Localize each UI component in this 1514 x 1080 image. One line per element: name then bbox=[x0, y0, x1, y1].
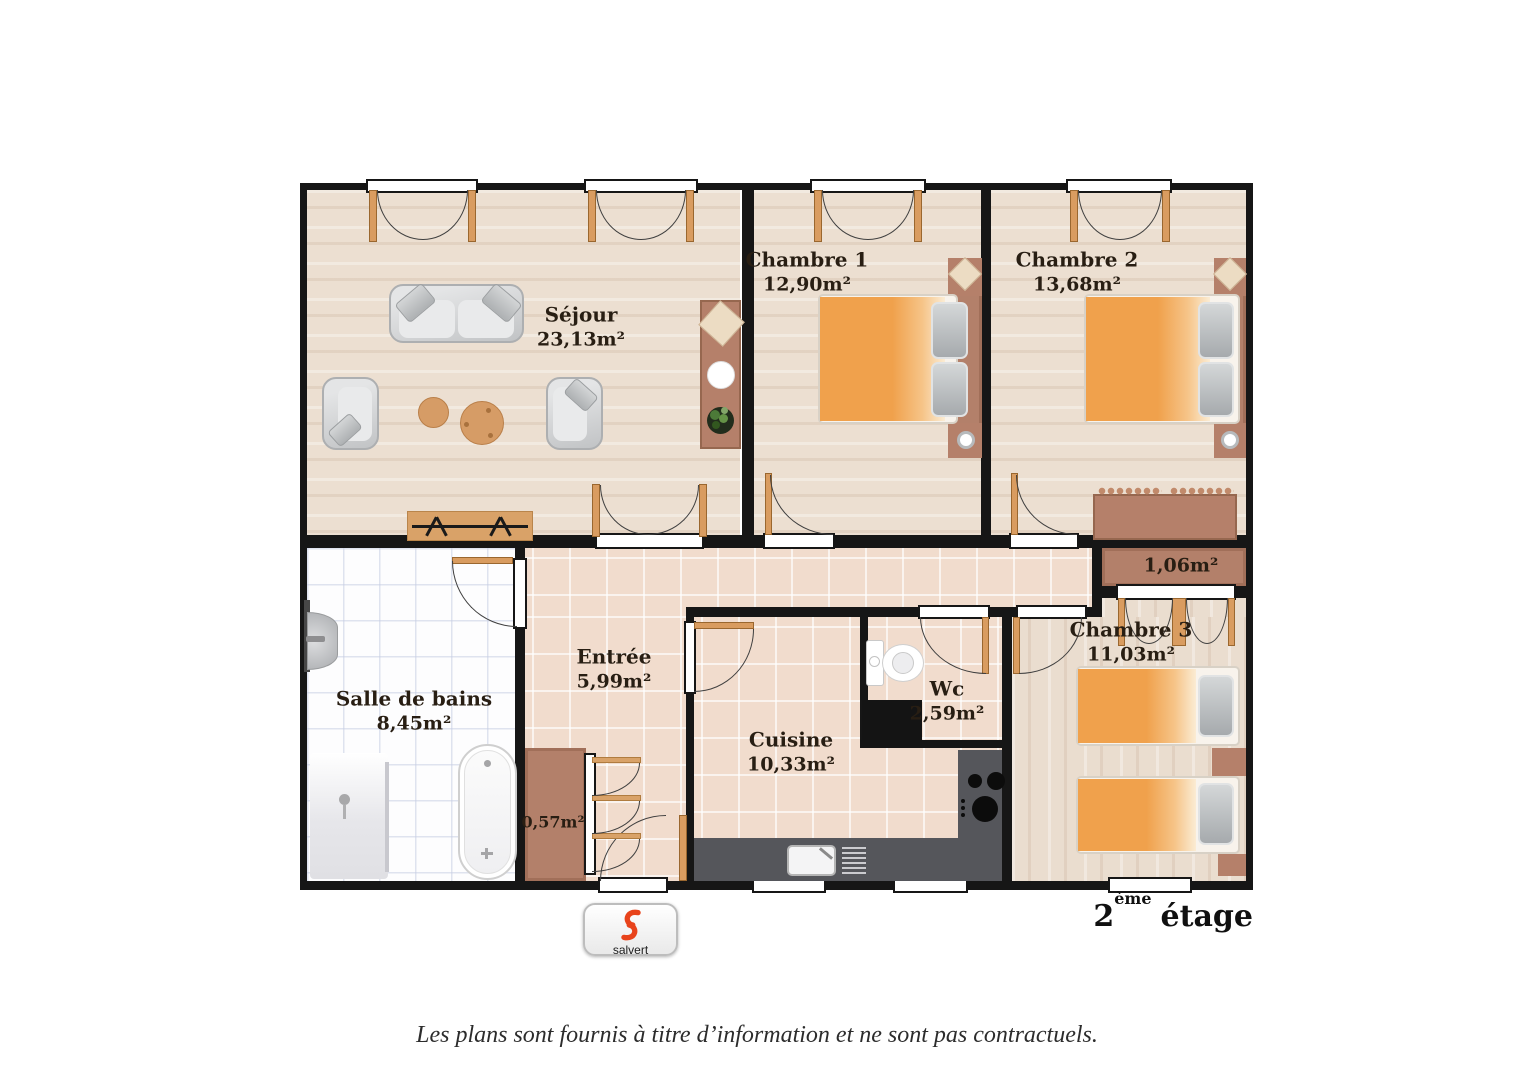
wall-chambre1-chambre2 bbox=[981, 190, 991, 535]
room-name: Wc bbox=[910, 675, 985, 701]
room-label-chambre1: Chambre 1 12,90m² bbox=[746, 246, 869, 297]
table-detail bbox=[486, 408, 491, 413]
wall-outer-right bbox=[1246, 183, 1253, 890]
chambre3-mattress1 bbox=[1078, 669, 1196, 743]
decor-plate bbox=[707, 361, 735, 389]
room-label-chambre3: Chambre 3 11,03m² bbox=[1070, 616, 1193, 667]
closet-057-label: 0,57m² bbox=[522, 811, 585, 832]
shower bbox=[310, 753, 388, 879]
floor-hall bbox=[525, 548, 1092, 607]
chambre2-pillow bbox=[1198, 362, 1234, 417]
closet-106-label: 1,06m² bbox=[1144, 553, 1219, 578]
window-jamb bbox=[369, 190, 377, 242]
chambre3-pillow2 bbox=[1198, 783, 1234, 845]
room-name: Entrée bbox=[576, 643, 651, 669]
coffee-table-small bbox=[418, 397, 449, 428]
floor-title: 2èmeétage bbox=[1000, 899, 1253, 934]
room-area: 5,99m² bbox=[576, 670, 651, 695]
room-label-sejour: Séjour 23,13m² bbox=[537, 301, 625, 352]
shower-hose bbox=[343, 805, 346, 819]
wall-hall-closet106 bbox=[1092, 540, 1102, 607]
sink-faucet bbox=[306, 636, 325, 642]
room-name: Chambre 3 bbox=[1070, 616, 1193, 642]
room-name: Séjour bbox=[537, 301, 625, 327]
room-area: 13,68m² bbox=[1016, 273, 1139, 298]
chambre1-pillow bbox=[931, 302, 968, 359]
door-cuisine-leaf bbox=[694, 622, 754, 629]
room-area: 8,45m² bbox=[336, 712, 492, 737]
room-area: 10,33m² bbox=[747, 753, 835, 778]
bifold-jamb bbox=[1228, 598, 1235, 646]
room-name: Salle de bains bbox=[336, 685, 492, 711]
door-sejour-leaf bbox=[699, 484, 707, 537]
dresser-scallop bbox=[1098, 487, 1162, 495]
chambre1-mattress bbox=[820, 297, 945, 421]
chambre3-side-table bbox=[1218, 854, 1246, 876]
room-label-entree: Entrée 5,99m² bbox=[576, 643, 651, 694]
wall-outer-left bbox=[300, 183, 307, 890]
room-label-cuisine: Cuisine 10,33m² bbox=[747, 726, 835, 777]
table-detail bbox=[488, 433, 493, 438]
cooktop-knob bbox=[961, 813, 965, 817]
bathtub-drain bbox=[484, 760, 491, 767]
salvert-logo: salvert bbox=[583, 903, 678, 956]
table-detail bbox=[464, 422, 469, 427]
kitchen-counter-right bbox=[958, 750, 1002, 838]
floor-plan-page: Séjour 23,13m² Chambre 1 12,90m² Chambre… bbox=[0, 0, 1514, 1080]
chambre2-lamp bbox=[1221, 431, 1239, 449]
dresser-scallop bbox=[1170, 487, 1234, 495]
logo-brand-text: salvert bbox=[585, 944, 676, 956]
window-jamb bbox=[914, 190, 922, 242]
room-name: Cuisine bbox=[747, 726, 835, 752]
wall-wc-bottom bbox=[860, 740, 1002, 748]
room-area: 23,13m² bbox=[537, 328, 625, 353]
chambre3-nightstand bbox=[1212, 748, 1246, 776]
cooktop-burner bbox=[987, 772, 1005, 790]
window-jamb bbox=[1070, 190, 1078, 242]
disclaimer-text: Les plans sont fournis à titre d’informa… bbox=[0, 1022, 1514, 1049]
logo-s-icon bbox=[616, 908, 646, 942]
cooktop-knob bbox=[961, 799, 965, 803]
room-area: 12,90m² bbox=[746, 273, 869, 298]
door-chambre2-threshold bbox=[1009, 533, 1079, 549]
room-name: Chambre 1 bbox=[746, 246, 869, 272]
floor-word: étage bbox=[1161, 899, 1253, 934]
cooktop-burner bbox=[968, 774, 982, 788]
room-label-wc: Wc 2,59m² bbox=[910, 675, 985, 726]
kitchen-drainboard bbox=[842, 847, 866, 875]
window-jamb bbox=[1162, 190, 1170, 242]
plant-leaf bbox=[719, 414, 728, 423]
toilet-seat bbox=[892, 652, 914, 674]
floor-number: 2 bbox=[1093, 899, 1114, 934]
chambre3-pillow1 bbox=[1198, 675, 1234, 737]
window-jamb bbox=[686, 190, 694, 242]
room-label-chambre2: Chambre 2 13,68m² bbox=[1016, 246, 1139, 297]
door-sejour-threshold bbox=[595, 533, 704, 549]
wall-cuisine-chambre3 bbox=[1002, 607, 1012, 881]
door-sejour-leaf bbox=[592, 484, 600, 537]
room-name: Chambre 2 bbox=[1016, 246, 1139, 272]
floor-ordinal: ème bbox=[1114, 889, 1151, 908]
chambre2-mattress bbox=[1086, 297, 1210, 421]
chambre2-dresser bbox=[1093, 494, 1237, 540]
entree-front-door-leaf bbox=[679, 815, 687, 881]
window-jamb bbox=[814, 190, 822, 242]
room-label-salle-de-bains: Salle de bains 8,45m² bbox=[336, 685, 492, 736]
kitchen-sink bbox=[787, 845, 836, 876]
chambre1-lamp bbox=[957, 431, 975, 449]
toilet-button bbox=[869, 656, 880, 667]
window-jamb bbox=[588, 190, 596, 242]
window-jamb bbox=[468, 190, 476, 242]
shower-head bbox=[339, 794, 350, 805]
cooktop-knob bbox=[961, 806, 965, 810]
chambre3-mattress2 bbox=[1078, 779, 1196, 851]
room-area: 11,03m² bbox=[1070, 643, 1193, 668]
wall-sejour-chambre1 bbox=[742, 190, 754, 535]
plant-leaf bbox=[721, 407, 728, 414]
bathtub-faucet bbox=[485, 848, 488, 859]
plant-leaf bbox=[712, 421, 720, 429]
chambre1-pillow bbox=[931, 362, 968, 417]
door-chambre1-threshold bbox=[763, 533, 835, 549]
room-area: 2,59m² bbox=[910, 702, 985, 727]
chambre2-pillow bbox=[1198, 302, 1234, 359]
shower-glass bbox=[385, 762, 389, 872]
cooktop-burner bbox=[972, 796, 998, 822]
